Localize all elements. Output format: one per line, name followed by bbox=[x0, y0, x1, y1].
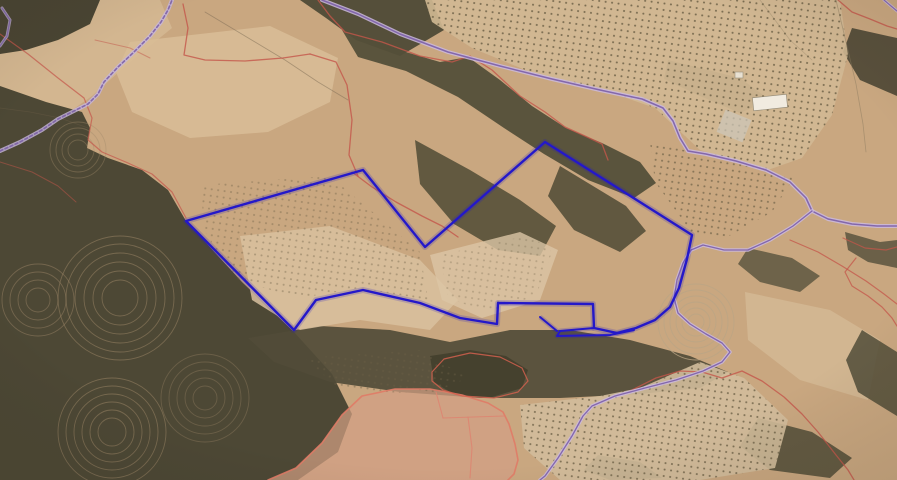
vignette-overlay bbox=[0, 0, 897, 480]
map-canvas[interactable] bbox=[0, 0, 897, 480]
aerial-imagery bbox=[0, 0, 897, 480]
